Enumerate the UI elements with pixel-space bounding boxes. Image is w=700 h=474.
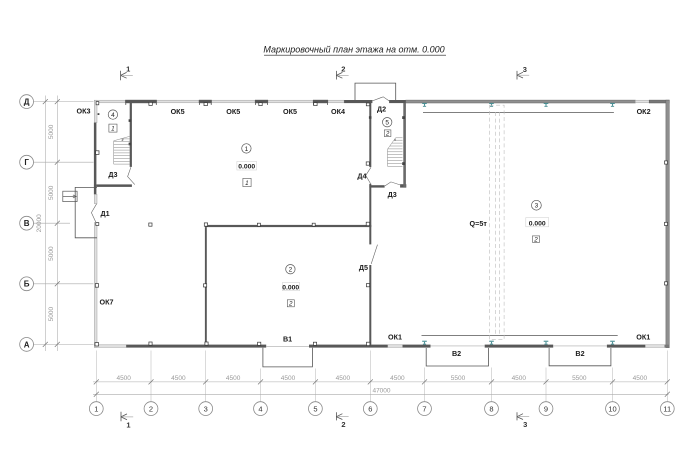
svg-text:5: 5 xyxy=(313,404,317,413)
svg-text:Д: Д xyxy=(24,98,30,107)
svg-text:Д5: Д5 xyxy=(359,263,368,272)
svg-text:0.000: 0.000 xyxy=(238,164,255,171)
svg-text:ОК1: ОК1 xyxy=(388,333,402,342)
svg-text:11: 11 xyxy=(663,404,671,413)
svg-text:ОК5: ОК5 xyxy=(171,107,185,116)
svg-text:Д2: Д2 xyxy=(377,105,386,114)
svg-text:ОК2: ОК2 xyxy=(637,107,651,116)
svg-text:4: 4 xyxy=(258,404,262,413)
svg-text:2: 2 xyxy=(289,267,293,274)
svg-text:1: 1 xyxy=(126,65,130,74)
svg-text:1: 1 xyxy=(245,180,249,187)
svg-text:5000: 5000 xyxy=(48,306,55,321)
svg-text:1: 1 xyxy=(111,126,115,133)
svg-text:5000: 5000 xyxy=(48,246,55,261)
svg-text:Д3: Д3 xyxy=(108,170,117,179)
svg-text:10: 10 xyxy=(608,404,616,413)
svg-text:5500: 5500 xyxy=(572,375,587,382)
svg-text:4500: 4500 xyxy=(171,375,186,382)
svg-text:20000: 20000 xyxy=(36,214,43,232)
svg-text:6: 6 xyxy=(368,404,372,413)
svg-text:0.000: 0.000 xyxy=(282,285,299,292)
svg-text:4500: 4500 xyxy=(390,375,405,382)
svg-text:3: 3 xyxy=(523,420,527,429)
svg-text:5000: 5000 xyxy=(48,185,55,200)
svg-text:В1: В1 xyxy=(283,334,292,343)
svg-text:1: 1 xyxy=(94,404,98,413)
svg-text:В: В xyxy=(24,219,30,228)
svg-text:47000: 47000 xyxy=(372,387,390,394)
svg-text:В2: В2 xyxy=(575,349,584,358)
svg-text:0.000: 0.000 xyxy=(529,220,546,227)
svg-text:ОК3: ОК3 xyxy=(77,106,91,115)
svg-text:4500: 4500 xyxy=(633,375,648,382)
svg-text:ОК4: ОК4 xyxy=(331,107,345,116)
svg-text:5500: 5500 xyxy=(451,375,466,382)
svg-text:8: 8 xyxy=(489,404,493,413)
svg-text:4500: 4500 xyxy=(512,375,527,382)
svg-text:4500: 4500 xyxy=(281,375,296,382)
svg-text:В2: В2 xyxy=(452,349,461,358)
svg-text:2: 2 xyxy=(288,301,293,308)
svg-text:Д1: Д1 xyxy=(101,209,110,218)
svg-text:ОК5: ОК5 xyxy=(226,107,240,116)
svg-text:Г: Г xyxy=(24,158,29,167)
svg-text:ОК1: ОК1 xyxy=(636,333,650,342)
svg-text:1: 1 xyxy=(245,146,249,153)
svg-text:1: 1 xyxy=(126,421,130,430)
svg-text:3: 3 xyxy=(535,203,539,210)
svg-text:4500: 4500 xyxy=(116,375,131,382)
svg-text:Д4: Д4 xyxy=(357,171,366,180)
svg-text:2: 2 xyxy=(341,420,345,429)
svg-text:ОК5: ОК5 xyxy=(283,107,297,116)
svg-text:4: 4 xyxy=(111,112,115,119)
svg-text:2: 2 xyxy=(533,237,538,244)
svg-text:Б: Б xyxy=(24,280,30,289)
svg-text:3: 3 xyxy=(204,404,208,413)
svg-text:Д3: Д3 xyxy=(388,190,397,199)
svg-text:3: 3 xyxy=(523,65,527,74)
svg-text:9: 9 xyxy=(544,404,548,413)
svg-text:2: 2 xyxy=(385,131,390,138)
svg-text:5000: 5000 xyxy=(48,124,55,139)
svg-text:ОК7: ОК7 xyxy=(100,298,114,307)
svg-text:Q=5т: Q=5т xyxy=(470,219,488,228)
svg-text:7: 7 xyxy=(422,404,426,413)
svg-text:4500: 4500 xyxy=(226,375,241,382)
svg-text:5: 5 xyxy=(385,120,389,127)
svg-text:2: 2 xyxy=(341,65,345,74)
svg-text:А: А xyxy=(24,340,30,349)
svg-text:Маркировочный план этажа на от: Маркировочный план этажа на отм. 0.000 xyxy=(263,45,444,55)
svg-text:2: 2 xyxy=(149,404,153,413)
svg-text:4500: 4500 xyxy=(336,375,351,382)
